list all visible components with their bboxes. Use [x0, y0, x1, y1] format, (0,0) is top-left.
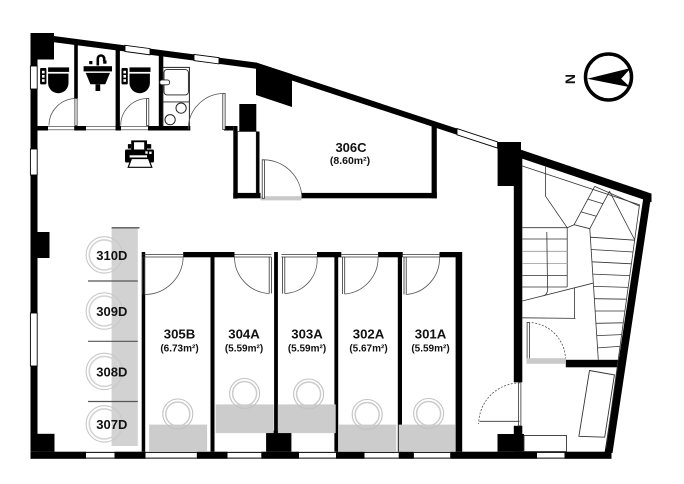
svg-text:302A: 302A	[353, 327, 385, 342]
svg-text:309D: 309D	[96, 304, 127, 319]
svg-text:301A: 301A	[415, 327, 447, 342]
svg-text:(5.59m²): (5.59m²)	[288, 344, 326, 355]
svg-text:(8.60m²): (8.60m²)	[330, 155, 370, 167]
svg-text:308D: 308D	[96, 364, 127, 379]
svg-text:(5.67m²): (5.67m²)	[349, 344, 387, 355]
svg-text:N: N	[562, 74, 578, 84]
svg-text:303A: 303A	[291, 327, 323, 342]
svg-text:(6.73m²): (6.73m²)	[160, 344, 198, 355]
svg-text:304A: 304A	[228, 327, 260, 342]
svg-text:310D: 310D	[96, 248, 127, 263]
svg-text:(5.59m²): (5.59m²)	[225, 344, 263, 355]
svg-text:306C: 306C	[335, 140, 367, 155]
svg-text:307D: 307D	[96, 417, 127, 432]
svg-text:305B: 305B	[164, 327, 196, 342]
svg-text:(5.59m²): (5.59m²)	[411, 344, 449, 355]
